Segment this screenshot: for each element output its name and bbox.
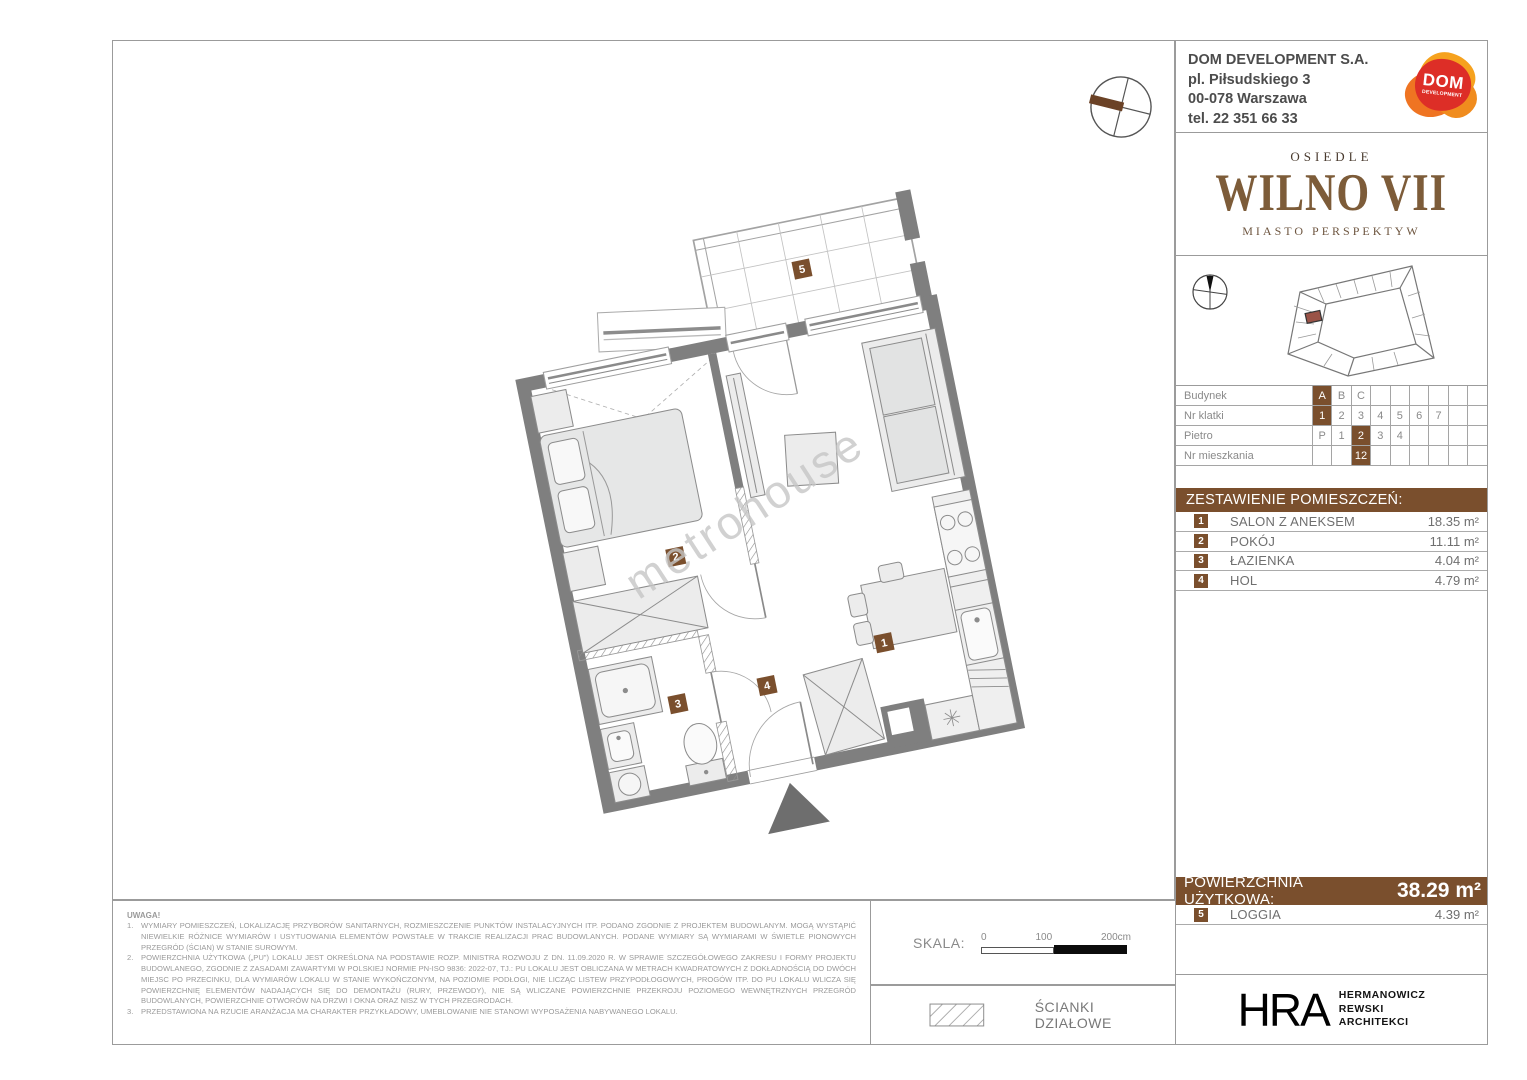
floor-plan-svg: 1 2 3 4 5 metrohouse — [113, 41, 1174, 899]
scale-bar-black — [1054, 945, 1127, 954]
table-cell: C — [1351, 386, 1370, 405]
table-cell — [1409, 426, 1428, 445]
table-cell — [1390, 386, 1409, 405]
scale-tick: 200cm — [1101, 932, 1131, 943]
dom-development-logo-icon: DOM DEVELOPMENT — [1403, 53, 1479, 121]
loggia-name: LOGGIA — [1230, 907, 1435, 922]
badge-5: 5 — [791, 259, 812, 280]
table-cell: P — [1312, 426, 1331, 445]
table-row: PietroP1234 — [1176, 426, 1487, 446]
notes-box: UWAGA! 1.WYMIARY POMIESZCZEŃ, LOKALIZACJ… — [112, 900, 871, 1045]
building-locator-map — [1176, 256, 1487, 386]
room-badge: 4 — [1194, 574, 1208, 588]
table-cell — [1467, 426, 1486, 445]
room-badge: 2 — [1194, 534, 1208, 548]
loggia-area: 4.39 m² — [1435, 907, 1479, 922]
table-cell: A — [1312, 386, 1331, 405]
architect-line: ARCHITEKCI — [1339, 1016, 1426, 1030]
table-cell — [1370, 446, 1389, 465]
table-cell — [1331, 446, 1350, 465]
plan-sheet: 1 2 3 4 5 metrohouse UWAGA! 1.WYMIARY PO… — [0, 0, 1527, 1080]
loggia-row: 5 LOGGIA 4.39 m² — [1176, 905, 1487, 925]
estate-tagline: MIASTO PERSPEKTYW — [1242, 224, 1420, 239]
estate-brand: OSIEDLE WILNO VII MIASTO PERSPEKTYW — [1176, 133, 1487, 256]
developer-phone: tel. 22 351 66 33 — [1188, 110, 1403, 130]
location-table: BudynekABC Nr klatki1234567 PietroP1234 … — [1176, 386, 1487, 466]
table-cell: 4 — [1390, 426, 1409, 445]
table-cell: 2 — [1331, 406, 1350, 425]
scale-tick: 0 — [981, 932, 987, 943]
developer-block: DOM DEVELOPMENT S.A. pl. Piłsudskiego 3 … — [1176, 41, 1487, 133]
table-cell: 1 — [1312, 406, 1331, 425]
architect-abbr: HRA — [1238, 987, 1329, 1033]
table-cell — [1312, 446, 1331, 465]
room-rname: SALON Z ANEKSEM — [1230, 514, 1428, 529]
table-cell — [1409, 386, 1428, 405]
architect-line: REWSKI — [1339, 1003, 1426, 1017]
architect-line: HERMANOWICZ — [1339, 989, 1426, 1003]
rooms-header: ZESTAWIENIE POMIESZCZEŃ: — [1176, 488, 1487, 512]
note-item: 3.PRZEDSTAWIONA NA RZUCIE ARANŻACJA MA C… — [127, 1007, 856, 1018]
table-row-label: Nr mieszkania — [1176, 446, 1312, 465]
badge-1: 1 — [874, 632, 895, 653]
table-row-label: Nr klatki — [1176, 406, 1312, 425]
table-cell — [1467, 386, 1486, 405]
room-list-item: 2POKÓJ11.11 m² — [1176, 532, 1487, 552]
table-cell — [1448, 446, 1467, 465]
north-arrow-icon — [1083, 70, 1158, 143]
scale-bar: 0 100 200cm — [981, 932, 1131, 954]
note-item: 2.POWIERZCHNIA UŻYTKOWA („PU") LOKALU JE… — [127, 953, 856, 1007]
drawing-area: 1 2 3 4 5 metrohouse — [112, 40, 1175, 900]
scale-tick: 100 — [1035, 932, 1052, 943]
table-cell: 5 — [1390, 406, 1409, 425]
room-rarea: 11.11 m² — [1430, 534, 1479, 549]
sidebar: DOM DEVELOPMENT S.A. pl. Piłsudskiego 3 … — [1175, 40, 1488, 1045]
washing-machine — [609, 766, 650, 803]
scale-box: SKALA: 0 100 200cm — [870, 900, 1176, 985]
usable-area-banner: POWIERZCHNIA UŻYTKOWA: 38.29 m² — [1176, 877, 1487, 905]
table-cell: 6 — [1409, 406, 1428, 425]
usable-area-label: POWIERZCHNIA UŻYTKOWA: — [1184, 874, 1397, 908]
room-rname: HOL — [1230, 573, 1435, 588]
entry-arrow-icon — [759, 777, 830, 835]
room-rarea: 4.04 m² — [1435, 553, 1479, 568]
table-cell: 1 — [1331, 426, 1350, 445]
room-rname: POKÓJ — [1230, 534, 1430, 549]
table-cell — [1467, 446, 1486, 465]
table-cell: 4 — [1370, 406, 1389, 425]
table-cell: 12 — [1351, 446, 1370, 465]
legend-box: ŚCIANKI DZIAŁOWE — [870, 985, 1176, 1045]
table-cell — [1448, 426, 1467, 445]
room-badge: 3 — [1194, 554, 1208, 568]
table-cell — [1409, 446, 1428, 465]
architect-logo: HRA HERMANOWICZ REWSKI ARCHITEKCI — [1176, 974, 1487, 1044]
developer-name: DOM DEVELOPMENT S.A. — [1188, 51, 1403, 71]
table-cell: B — [1331, 386, 1350, 405]
estate-name: WILNO VII — [1216, 164, 1448, 224]
map-north-icon — [1193, 275, 1227, 309]
room-rarea: 18.35 m² — [1428, 514, 1479, 529]
table-cell — [1448, 406, 1467, 425]
loggia-badge: 5 — [1194, 908, 1208, 922]
room-badge: 1 — [1194, 514, 1208, 528]
table-row: Nr mieszkania12 — [1176, 446, 1487, 466]
badge-3: 3 — [667, 693, 688, 714]
table-row: Nr klatki1234567 — [1176, 406, 1487, 426]
table-cell — [1448, 386, 1467, 405]
room-rarea: 4.79 m² — [1435, 573, 1479, 588]
partition-swatch-icon — [929, 1003, 985, 1027]
shaft-niche — [887, 707, 913, 735]
notes-title: UWAGA! — [127, 911, 856, 920]
note-item: 1.WYMIARY POMIESZCZEŃ, LOKALIZACJĘ PRZYB… — [127, 921, 856, 953]
room-list-item: 1SALON Z ANEKSEM18.35 m² — [1176, 512, 1487, 532]
table-row: BudynekABC — [1176, 386, 1487, 406]
estate-label: OSIEDLE — [1290, 149, 1372, 165]
developer-address-1: pl. Piłsudskiego 3 — [1188, 71, 1403, 91]
table-cell: 2 — [1351, 426, 1370, 445]
table-cell — [1467, 406, 1486, 425]
room-list: 1SALON Z ANEKSEM18.35 m²2POKÓJ11.11 m²3Ł… — [1176, 512, 1487, 591]
room-rname: ŁAZIENKA — [1230, 553, 1435, 568]
table-cell — [1428, 426, 1447, 445]
scale-label: SKALA: — [913, 935, 965, 951]
badge-4: 4 — [757, 675, 778, 696]
table-cell: 7 — [1428, 406, 1447, 425]
table-cell — [1428, 386, 1447, 405]
developer-address-2: 00-078 Warszawa — [1188, 90, 1403, 110]
table-cell: 3 — [1370, 426, 1389, 445]
notes-body: 1.WYMIARY POMIESZCZEŃ, LOKALIZACJĘ PRZYB… — [127, 921, 856, 1018]
table-cell: 3 — [1351, 406, 1370, 425]
room-list-item: 3ŁAZIENKA4.04 m² — [1176, 552, 1487, 572]
table-cell — [1390, 446, 1409, 465]
scale-bar-white — [981, 947, 1054, 954]
table-cell — [1370, 386, 1389, 405]
partition-legend-label: ŚCIANKI DZIAŁOWE — [1035, 999, 1175, 1031]
table-row-label: Pietro — [1176, 426, 1312, 445]
table-cell — [1428, 446, 1447, 465]
usable-area-value: 38.29 m² — [1397, 879, 1481, 903]
table-row-label: Budynek — [1176, 386, 1312, 405]
room-list-item: 4HOL4.79 m² — [1176, 571, 1487, 591]
building-footprint — [1288, 266, 1434, 376]
